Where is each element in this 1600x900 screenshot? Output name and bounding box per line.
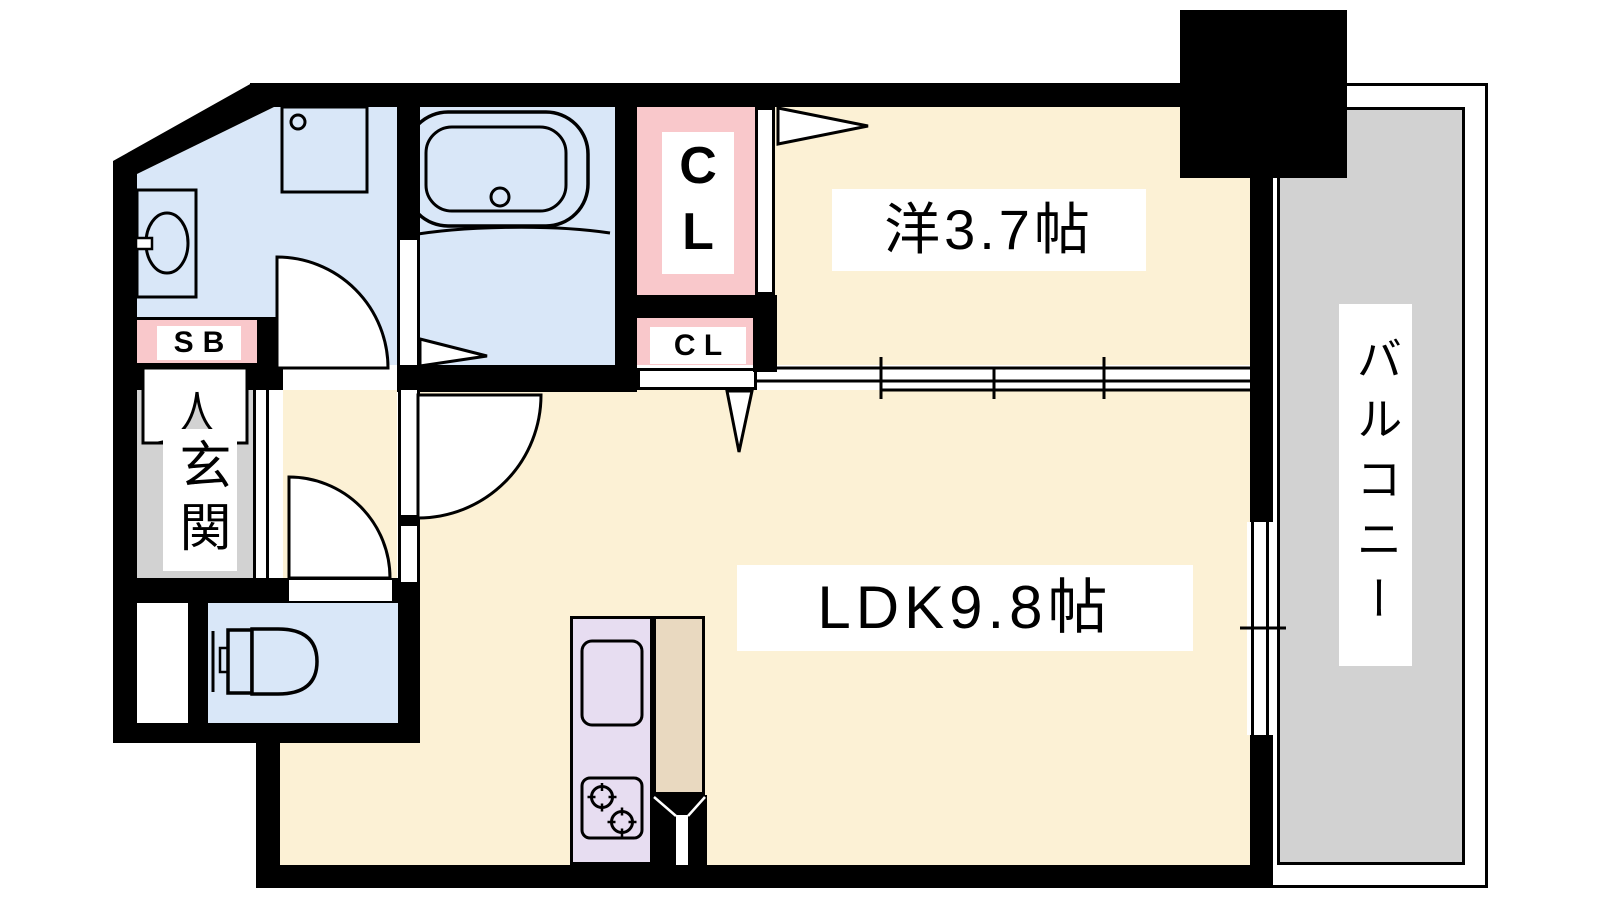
wall-bathroom-bottom [420, 365, 617, 392]
balcony-text: バルコニー [1352, 335, 1400, 635]
kitchen-counter [570, 616, 653, 865]
washroom-door-opening [277, 365, 397, 390]
floor-plan: SB CL C L 玄関 洋3.7帖 LDK9.8帖 バルコニー [0, 0, 1600, 900]
hallway-ldk-door-stub [398, 515, 420, 526]
hallway [283, 390, 397, 578]
balcony-label: バルコニー [1339, 304, 1412, 666]
closet-lower-label: C L [650, 327, 746, 364]
kitchen-side-counter [653, 616, 705, 795]
hallway-ldk-door-strip [398, 390, 420, 582]
wall-bottom [256, 865, 1273, 888]
wall-washroom-bottom [113, 363, 277, 390]
shoe-box-text: SB [174, 327, 234, 358]
entrance-label: 玄関 [163, 429, 237, 571]
wall-toilet-right [398, 578, 420, 743]
ldk-label: LDK9.8帖 [737, 565, 1193, 651]
wall-top [250, 83, 1180, 107]
wall-balcony-lower [1250, 733, 1273, 867]
closet-lower-text: C L [674, 330, 722, 361]
wall-toilet-inner [188, 603, 208, 723]
wall-balcony-upper [1250, 178, 1273, 524]
wall-washroom-bathroom-bottom [397, 363, 420, 392]
wall-washroom-bathroom-top [397, 107, 420, 243]
kitchen-wall-slot [676, 815, 688, 865]
closet-upper-door [755, 107, 775, 295]
wall-closet-lower-right [753, 318, 777, 372]
wall-step-left [256, 743, 280, 888]
ldk-text: LDK9.8帖 [817, 577, 1112, 639]
wall-toilet-bottom [113, 723, 420, 743]
room-bathroom [420, 107, 615, 365]
wall-under-closet [615, 295, 777, 318]
western-room-text: 洋3.7帖 [884, 201, 1094, 259]
shoe-box-label: SB [157, 326, 241, 360]
structural-pillar-box [1180, 10, 1347, 178]
wall-closet-left [615, 107, 637, 392]
closet-lower-door [637, 368, 757, 390]
closet-upper-label: CL [662, 132, 734, 274]
room-toilet [208, 603, 398, 723]
partition-band [757, 365, 1250, 392]
toilet-door-opening [289, 580, 392, 601]
closet-upper-text: CL [671, 137, 725, 269]
wall-sb-right [257, 317, 283, 390]
western-room-label: 洋3.7帖 [832, 189, 1146, 271]
entrance-text: 玄関 [173, 438, 227, 562]
toilet-side-space [137, 603, 188, 723]
ldk-balcony-window [1247, 522, 1275, 735]
entrance-step-line [266, 388, 269, 578]
bathroom-door [397, 240, 420, 365]
wall-left [113, 161, 137, 743]
